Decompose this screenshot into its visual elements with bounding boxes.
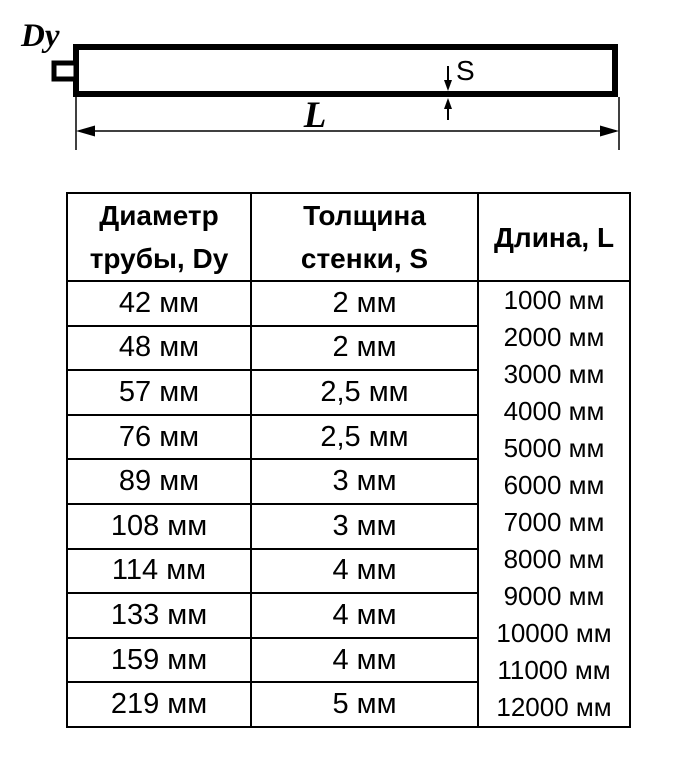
length-item: 6000 мм [479, 467, 629, 504]
spec-table-body: 42 мм2 мм1000 мм2000 мм3000 мм4000 мм500… [67, 281, 630, 727]
diameter-cell: 159 мм [67, 638, 251, 683]
length-item: 3000 мм [479, 356, 629, 393]
header-diameter-line1: Диаметр [68, 194, 250, 237]
thickness-cell: 4 мм [251, 549, 478, 594]
length-item: 2000 мм [479, 319, 629, 356]
length-item: 12000 мм [479, 689, 629, 726]
header-thickness-line2: стенки, S [252, 237, 477, 280]
diameter-cell: 42 мм [67, 281, 251, 326]
length-arrowhead-left [76, 126, 95, 137]
spec-table: Диаметр трубы, Dy Толщина стенки, S Длин… [66, 192, 631, 728]
diameter-cell: 114 мм [67, 549, 251, 594]
header-thickness: Толщина стенки, S [251, 193, 478, 281]
diameter-cell: 219 мм [67, 682, 251, 727]
length-item: 10000 мм [479, 615, 629, 652]
thickness-cell: 5 мм [251, 682, 478, 727]
thickness-cell: 2 мм [251, 326, 478, 371]
s-arrowhead-up [444, 98, 452, 109]
header-length-line1: Длина, L [479, 216, 629, 259]
thickness-cell: 2,5 мм [251, 415, 478, 460]
thickness-cell: 3 мм [251, 459, 478, 504]
pipe-body [76, 47, 615, 94]
length-arrowhead-right [600, 126, 619, 137]
length-item: 1000 мм [479, 282, 629, 319]
length-item: 8000 мм [479, 541, 629, 578]
pipe-spec-sheet: Dy S L Диаметр трубы, Dy [0, 0, 681, 784]
wall-thickness-label: S [456, 55, 475, 86]
length-item: 5000 мм [479, 430, 629, 467]
pipe-diagram: Dy S L [0, 0, 681, 178]
diameter-cell: 48 мм [67, 326, 251, 371]
diameter-cell: 76 мм [67, 415, 251, 460]
thickness-cell: 4 мм [251, 593, 478, 638]
thickness-cell: 2,5 мм [251, 370, 478, 415]
diameter-cell: 108 мм [67, 504, 251, 549]
diameter-cell: 57 мм [67, 370, 251, 415]
header-diameter: Диаметр трубы, Dy [67, 193, 251, 281]
diameter-cell: 133 мм [67, 593, 251, 638]
length-label: L [303, 95, 327, 136]
table-row: 42 мм2 мм1000 мм2000 мм3000 мм4000 мм500… [67, 281, 630, 326]
diameter-cell: 89 мм [67, 459, 251, 504]
length-item: 9000 мм [479, 578, 629, 615]
length-item: 7000 мм [479, 504, 629, 541]
thickness-cell: 4 мм [251, 638, 478, 683]
header-thickness-line1: Толщина [252, 194, 477, 237]
length-item: 4000 мм [479, 393, 629, 430]
pipe-diameter-label: Dy [20, 18, 60, 54]
length-item: 11000 мм [479, 652, 629, 689]
header-row: Диаметр трубы, Dy Толщина стенки, S Длин… [67, 193, 630, 281]
thickness-cell: 3 мм [251, 504, 478, 549]
header-length: Длина, L [478, 193, 630, 281]
pipe-end-notch [54, 63, 76, 79]
header-diameter-line2: трубы, Dy [68, 237, 250, 280]
thickness-cell: 2 мм [251, 281, 478, 326]
lengths-cell: 1000 мм2000 мм3000 мм4000 мм5000 мм6000 … [478, 281, 630, 727]
